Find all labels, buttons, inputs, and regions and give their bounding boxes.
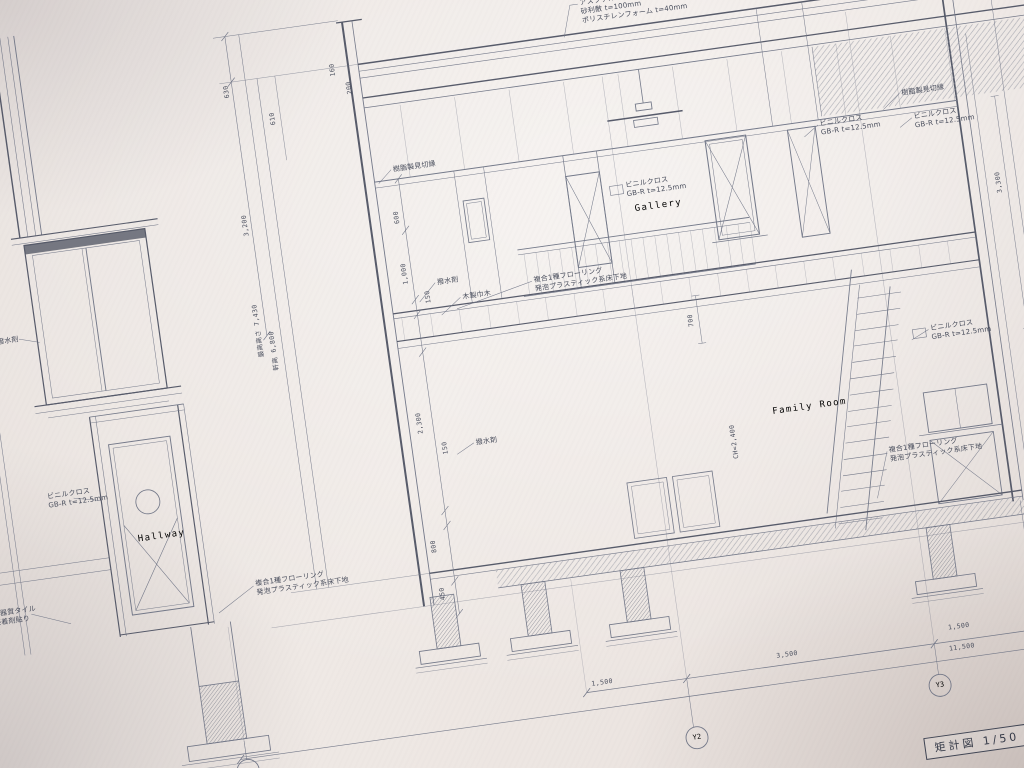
dim-160: 160 bbox=[328, 63, 336, 77]
drawing-sheet: アスファルト防水 砂利敷 t=100mm ポリスチレンフォーム t=40mm 樹… bbox=[0, 0, 1024, 768]
footing-4 bbox=[902, 521, 983, 603]
dim-150: 150 bbox=[424, 290, 432, 304]
foundation bbox=[267, 488, 1024, 693]
footing-2 bbox=[497, 578, 578, 660]
ceiling bbox=[364, 6, 1024, 188]
ceiling-fan-icon bbox=[601, 64, 684, 131]
dim-800: 800 bbox=[430, 540, 438, 554]
grid-marker-y3: Y3 bbox=[935, 681, 944, 689]
left-wall-section bbox=[0, 13, 280, 768]
stair bbox=[794, 263, 933, 535]
grid-marker-y2: Y2 bbox=[692, 734, 701, 742]
dim-600: 600 bbox=[393, 211, 401, 225]
footing-3 bbox=[596, 564, 677, 646]
dim-700: 700 bbox=[687, 314, 695, 328]
dim-450: 450 bbox=[438, 587, 446, 601]
dim-630: 630 bbox=[222, 85, 230, 99]
insulation-hatch bbox=[812, 6, 1024, 117]
dim-200: 200 bbox=[345, 81, 353, 95]
footing-1 bbox=[406, 591, 487, 673]
dim-150: 150 bbox=[441, 441, 449, 455]
dim-610: 610 bbox=[269, 112, 277, 126]
blueprint-photo: アスファルト防水 砂利敷 t=100mm ポリスチレンフォーム t=40mm 樹… bbox=[0, 0, 1024, 768]
